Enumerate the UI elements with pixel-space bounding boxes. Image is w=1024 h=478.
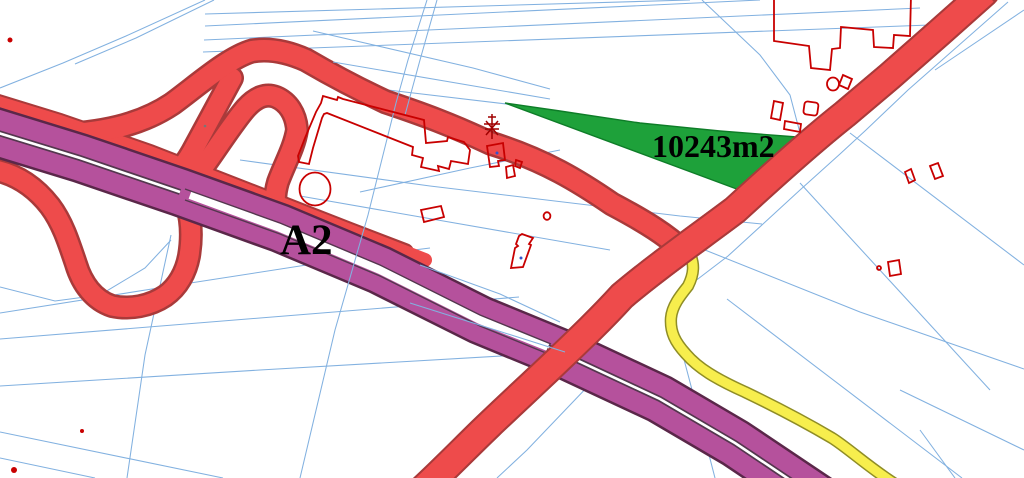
svg-text:10243m2: 10243m2 (652, 128, 775, 164)
svg-text:A2: A2 (280, 217, 333, 264)
